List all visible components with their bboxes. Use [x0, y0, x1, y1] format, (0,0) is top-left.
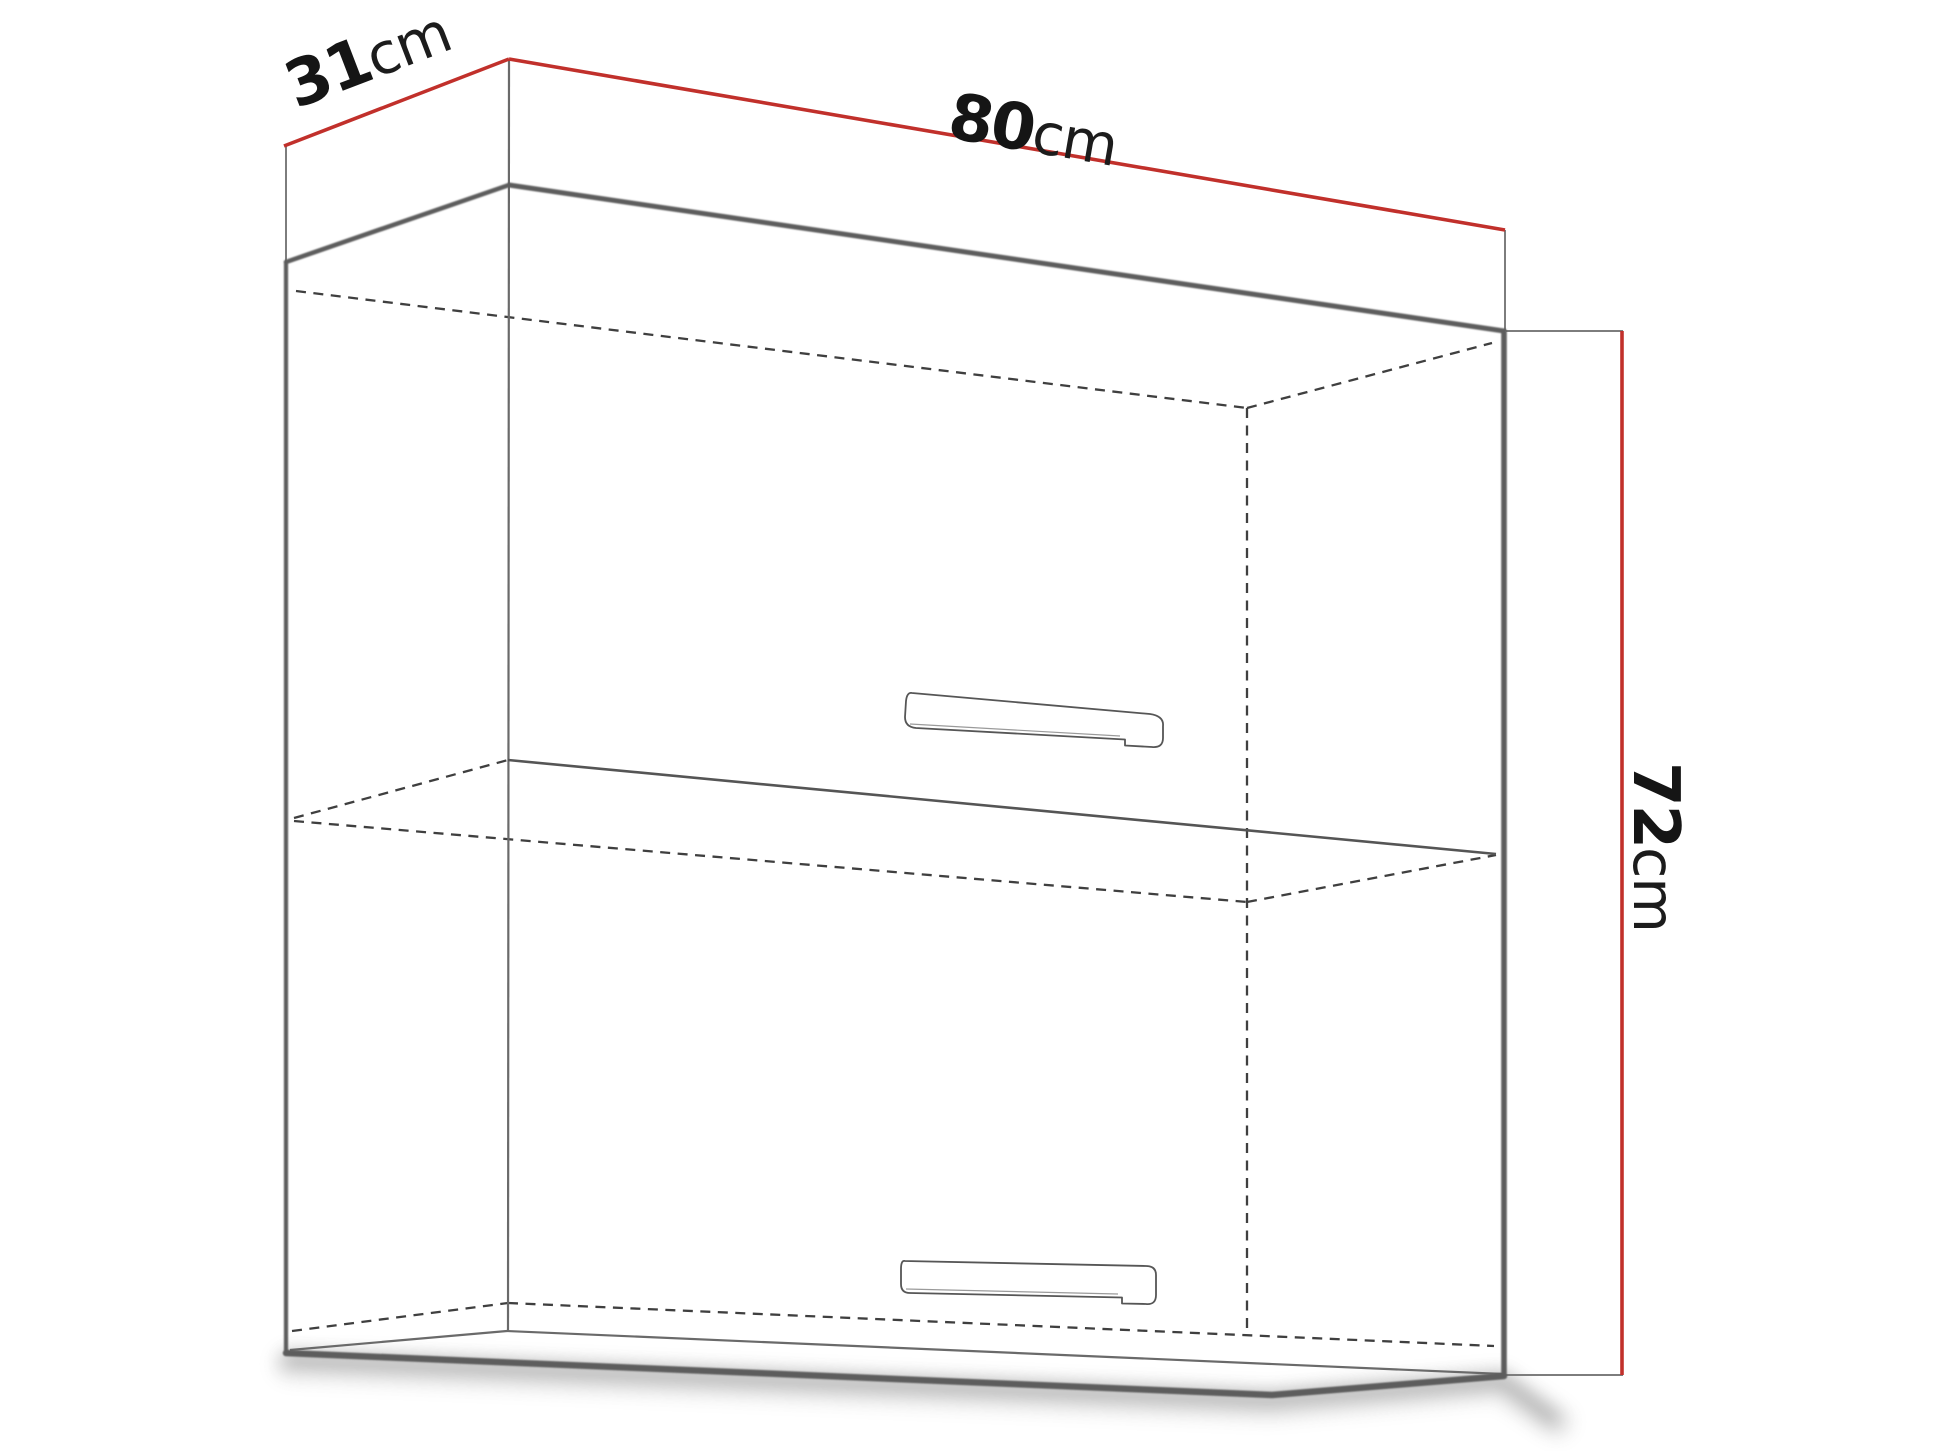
hidden-shelf-left-edge: [294, 760, 508, 818]
hidden-top-back-edge: [296, 291, 1247, 408]
top-left-edge: [286, 185, 509, 262]
top-front-edge: [509, 185, 1504, 331]
thin-edges: [290, 59, 1503, 1374]
cabinet-outline: [286, 185, 1504, 1395]
dimension-diagram: 31cm 80cm 72cm: [0, 0, 1940, 1455]
height-dimension-label: 72cm: [1623, 762, 1687, 932]
cabinet-drawing: [0, 0, 1940, 1455]
hidden-shelf-right-edge: [1247, 855, 1496, 902]
hidden-edges: [292, 291, 1496, 1346]
extension-lines: [286, 146, 1623, 1375]
front-left-edge: [508, 59, 509, 1330]
height-value: 72: [1618, 762, 1692, 847]
door-handles: [901, 693, 1163, 1304]
shelf-front-edge: [508, 760, 1496, 854]
width-unit: cm: [1027, 100, 1122, 179]
hidden-top-right-edge: [1247, 343, 1492, 408]
cabinet-shadow: [290, 300, 1556, 1422]
width-value: 80: [943, 80, 1039, 167]
height-unit: cm: [1620, 847, 1686, 932]
hidden-bottom-front-edge: [508, 1303, 1494, 1346]
hidden-bottom-left-edge: [292, 1303, 508, 1331]
top-door-handle: [905, 693, 1163, 747]
hidden-shelf-back-edge: [294, 821, 1247, 902]
bottom-door-handle: [901, 1261, 1156, 1304]
